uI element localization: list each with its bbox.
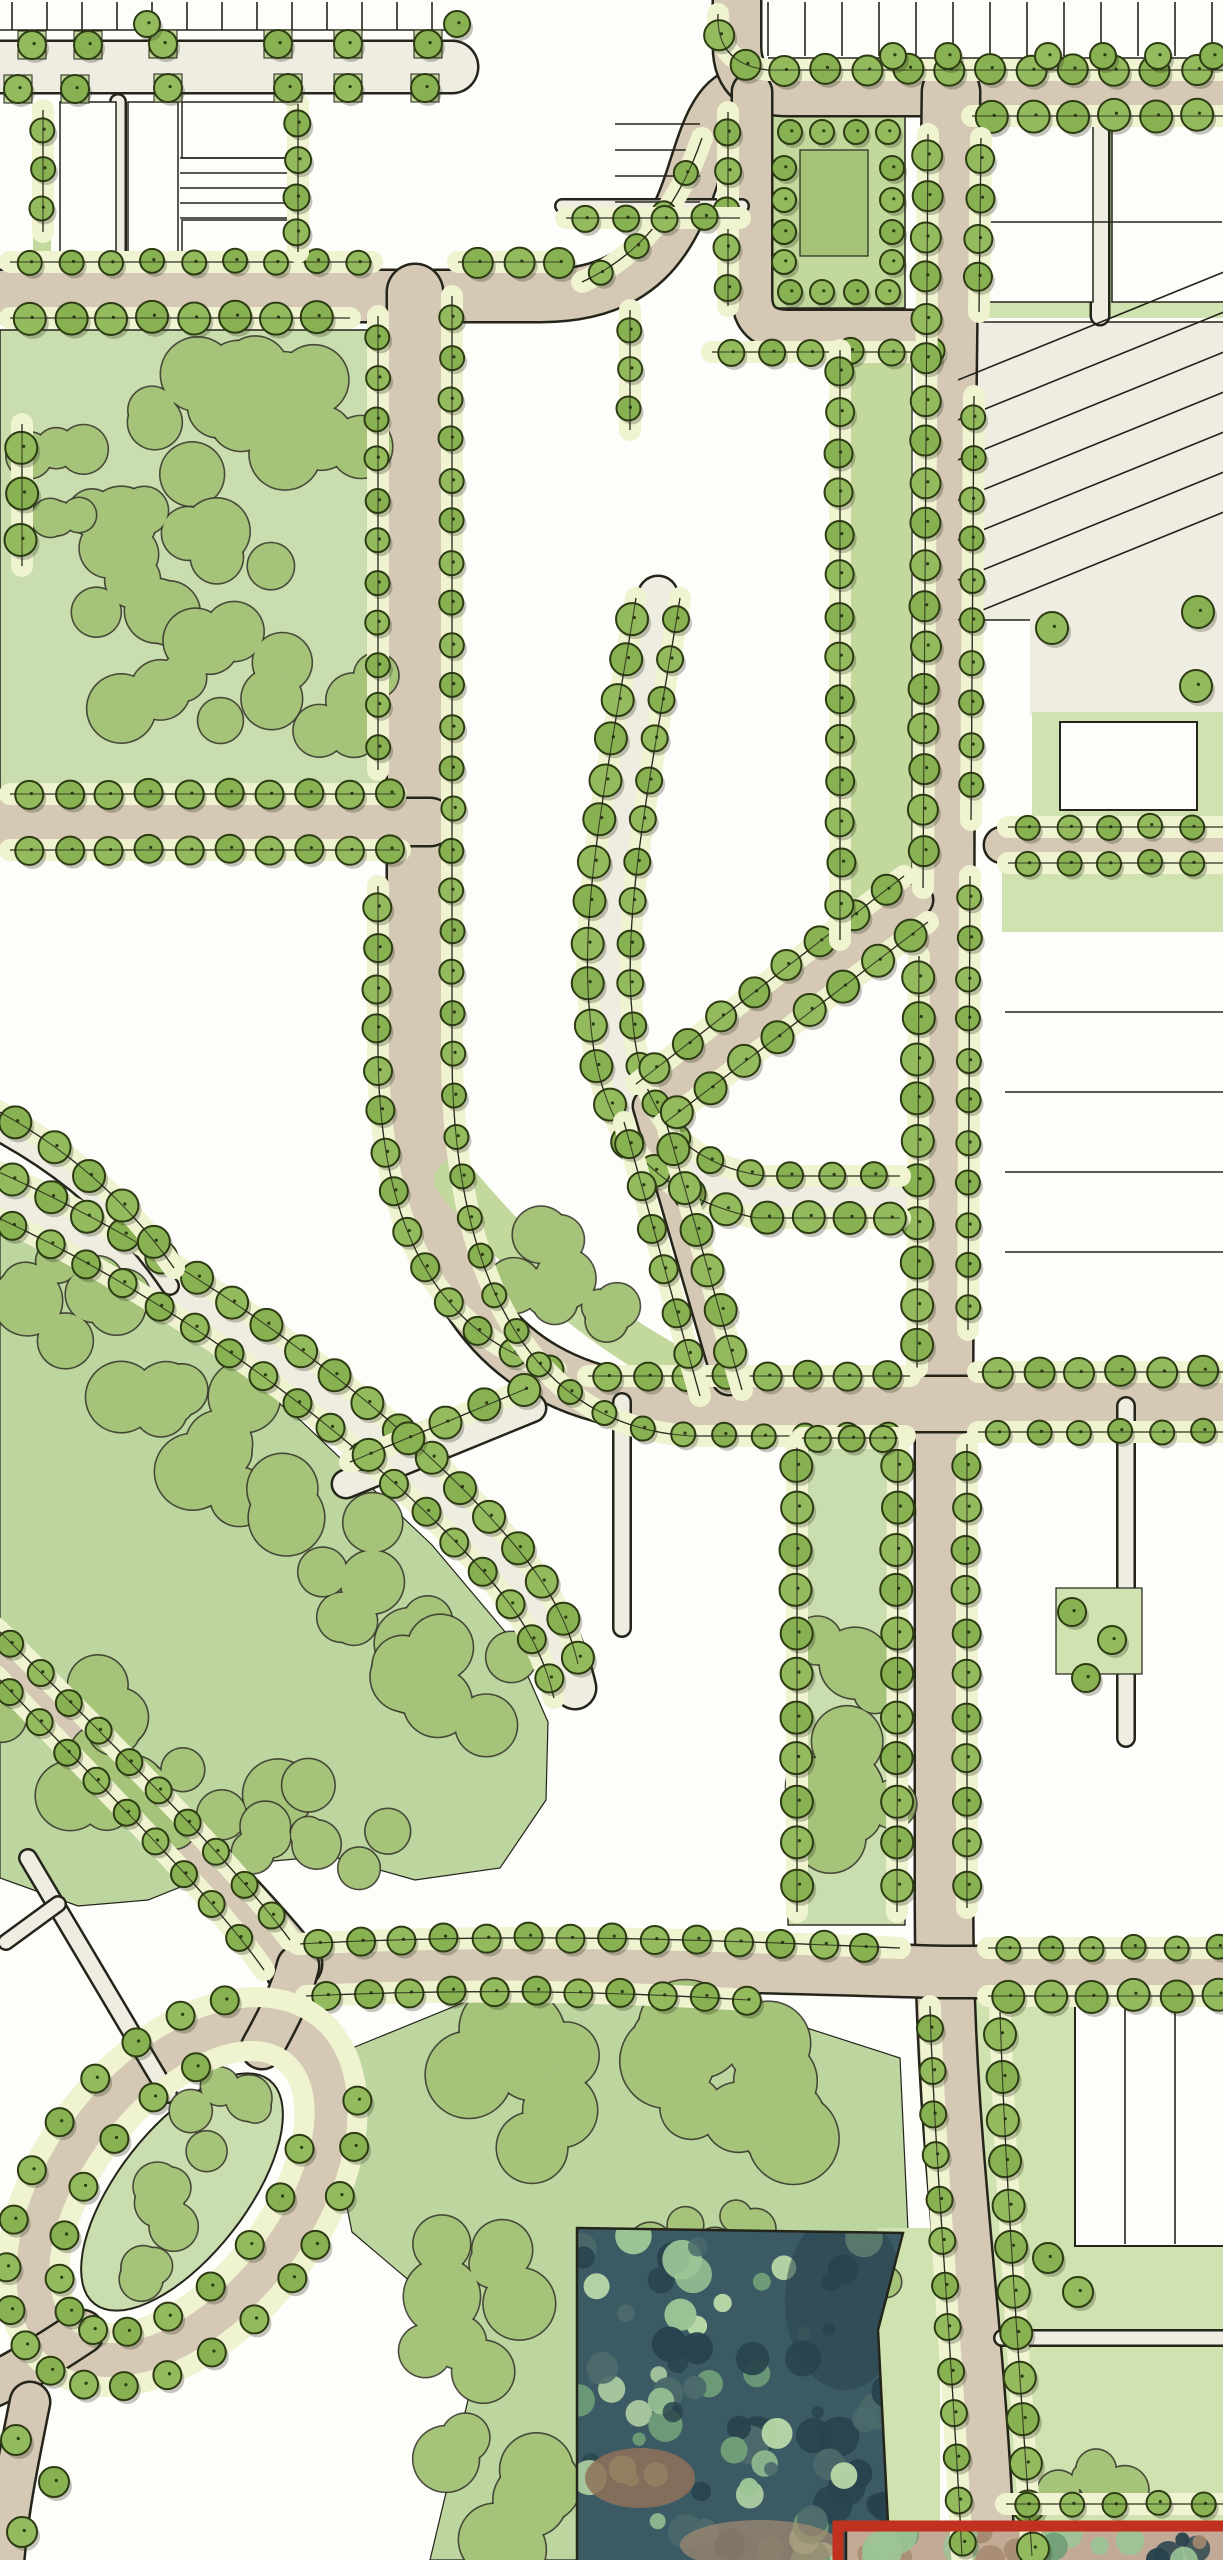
street-tree <box>989 2145 1021 2177</box>
street-tree <box>617 396 641 420</box>
street-tree <box>1 2425 31 2455</box>
street-tree <box>414 30 442 58</box>
street-tree <box>216 1287 248 1319</box>
tree-center-dot <box>918 1302 921 1305</box>
street-tree <box>876 280 900 304</box>
tree-canopy <box>632 2006 703 2077</box>
tree-canopy <box>187 2131 226 2170</box>
street-tree <box>1138 850 1162 874</box>
tree-center-dot <box>1197 683 1200 686</box>
photo-foliage <box>664 2299 696 2331</box>
street-tree <box>167 2002 195 2030</box>
tree-center-dot <box>1053 625 1056 628</box>
tree-center-dot <box>96 2076 99 2079</box>
tree-center-dot <box>954 2410 957 2413</box>
tree-center-dot <box>1120 1428 1123 1431</box>
photo-foliage <box>727 2416 751 2440</box>
street-tree <box>718 340 744 366</box>
street-tree <box>54 1740 80 1766</box>
street-tree <box>704 20 734 50</box>
tree-center-dot <box>378 375 381 378</box>
tree-canopy <box>331 1598 377 1644</box>
street-tree <box>336 781 364 809</box>
tree-center-dot <box>892 229 895 232</box>
street-tree <box>712 1423 736 1447</box>
tree-center-dot <box>124 2383 127 2386</box>
street-tree <box>353 1439 385 1471</box>
street-tree <box>880 1534 912 1566</box>
tree-center-dot <box>485 1401 488 1404</box>
photo-foliage <box>721 2437 748 2464</box>
tree-center-dot <box>490 1514 493 1517</box>
tree-center-dot <box>379 945 382 948</box>
tree-center-dot <box>888 289 891 292</box>
tree-center-dot <box>697 1937 700 1940</box>
street-tree <box>18 251 42 275</box>
photo-foliage <box>736 2342 769 2375</box>
street-tree <box>615 1130 643 1158</box>
tree-center-dot <box>967 1671 970 1674</box>
street-tree <box>1098 99 1130 131</box>
tree-center-dot <box>462 1174 465 1177</box>
street-tree <box>1188 1356 1218 1386</box>
tree-center-dot <box>1027 2460 1030 2463</box>
tree-center-dot <box>892 165 895 168</box>
photo-foliage <box>650 2513 666 2529</box>
street-tree <box>780 1742 812 1774</box>
street-tree <box>236 2231 264 2259</box>
tree-center-dot <box>920 1015 923 1018</box>
street-tree <box>135 835 163 863</box>
street-tree <box>911 632 941 662</box>
street-tree <box>216 835 244 863</box>
street-tree <box>135 779 163 807</box>
tree-center-dot <box>198 1275 201 1278</box>
street-tree <box>957 885 981 909</box>
aerial-photo-inset <box>563 2210 916 2560</box>
street-tree <box>197 2273 225 2301</box>
street-tree <box>780 1450 812 1482</box>
street-tree <box>393 1218 421 1246</box>
tree-center-dot <box>155 1239 158 1242</box>
building-lot <box>128 102 178 256</box>
tree-center-dot <box>570 1389 573 1392</box>
tree-center-dot <box>60 2276 63 2279</box>
street-tree <box>959 691 983 715</box>
street-tree <box>780 1534 812 1566</box>
tree-canopy <box>282 1759 334 1811</box>
tree-center-dot <box>909 66 912 69</box>
street-tree <box>692 204 718 230</box>
tree-canopy <box>131 661 190 720</box>
tree-center-dot <box>840 736 843 739</box>
tree-center-dot <box>470 1215 473 1218</box>
street-tree <box>219 301 251 333</box>
tree-center-dot <box>543 1578 546 1581</box>
tree-center-dot <box>168 2372 171 2375</box>
tree-center-dot <box>159 1787 162 1790</box>
tree-center-dot <box>1034 2545 1037 2548</box>
street-tree <box>15 781 43 809</box>
street-tree <box>844 120 868 144</box>
tree-center-dot <box>727 1206 730 1209</box>
tree-center-dot <box>970 935 973 938</box>
tree-center-dot <box>971 782 974 785</box>
street-tree <box>873 1361 901 1389</box>
street-tree <box>154 74 182 102</box>
street-tree <box>901 1082 933 1114</box>
tree-center-dot <box>1115 112 1118 115</box>
street-tree <box>733 1987 761 2015</box>
street-tree <box>376 779 404 807</box>
tree-canopy <box>721 2201 752 2232</box>
tree-canopy <box>184 499 250 565</box>
street-tree <box>1182 596 1214 628</box>
tree-center-dot <box>918 1177 921 1180</box>
tree-center-dot <box>957 2455 960 2458</box>
photo-foliage <box>667 2352 688 2373</box>
street-tree <box>923 2142 949 2168</box>
street-tree <box>56 1690 82 1716</box>
street-tree <box>772 250 796 274</box>
street-tree <box>0 1212 26 1240</box>
street-tree <box>463 248 493 278</box>
tree-canopy <box>470 2241 517 2288</box>
tree-center-dot <box>790 289 793 292</box>
street-tree <box>777 1162 803 1188</box>
street-tree <box>1108 1419 1132 1443</box>
street-tree <box>18 31 46 59</box>
street-tree <box>825 891 853 919</box>
tree-canopy <box>164 609 227 672</box>
street-tree <box>514 1923 542 1951</box>
tree-center-dot <box>331 1425 334 1428</box>
tree-canopy <box>373 1636 433 1696</box>
photo-ground-patch <box>585 2448 695 2508</box>
tree-center-dot <box>968 1883 971 1886</box>
street-tree <box>956 1171 980 1195</box>
tree-center-dot <box>784 197 787 200</box>
tree-center-dot <box>355 2144 358 2147</box>
street-tree <box>544 248 574 278</box>
street-tree <box>395 1979 423 2007</box>
photo-foliage <box>812 2406 824 2418</box>
tree-center-dot <box>452 682 455 685</box>
street-tree <box>392 1422 424 1454</box>
tree-center-dot <box>76 86 79 89</box>
street-tree <box>411 74 439 102</box>
tree-center-dot <box>925 603 928 606</box>
photo-foliage <box>1090 2537 1108 2555</box>
street-tree <box>70 2371 98 2399</box>
tree-center-dot <box>85 2382 88 2385</box>
tree-canopy <box>299 1548 347 1596</box>
tree-center-dot <box>1219 1991 1222 1994</box>
tree-canopy <box>135 1384 187 1436</box>
tree-center-dot <box>564 1616 567 1619</box>
street-tree <box>56 837 84 865</box>
street-tree <box>216 779 244 807</box>
tree-center-dot <box>724 1432 727 1435</box>
tree-center-dot <box>898 1883 901 1886</box>
street-tree <box>81 2065 109 2093</box>
tree-center-dot <box>1158 53 1161 56</box>
street-tree <box>780 1574 812 1606</box>
tree-center-dot <box>1003 2074 1006 2077</box>
tree-center-dot <box>390 790 393 793</box>
street-tree <box>365 446 389 470</box>
street-tree <box>226 1925 252 1951</box>
street-tree <box>482 1283 506 1307</box>
street-tree <box>1058 1598 1086 1626</box>
street-tree <box>340 2133 368 2161</box>
street-tree <box>583 803 615 835</box>
tree-center-dot <box>898 1670 901 1673</box>
street-tree <box>413 1498 441 1526</box>
street-tree <box>714 119 740 145</box>
tree-center-dot <box>427 1509 430 1512</box>
street-tree <box>363 975 391 1003</box>
tree-center-dot <box>153 314 156 317</box>
street-tree <box>56 781 84 809</box>
street-tree <box>759 340 785 366</box>
tree-center-dot <box>452 642 455 645</box>
street-tree <box>37 2357 65 2385</box>
tree-center-dot <box>1203 1428 1206 1431</box>
tree-center-dot <box>1015 2289 1018 2292</box>
street-tree <box>592 1401 616 1425</box>
tree-center-dot <box>968 1262 971 1265</box>
tree-center-dot <box>33 42 36 45</box>
tree-center-dot <box>967 1631 970 1634</box>
tree-center-dot <box>797 1630 800 1633</box>
tree-center-dot <box>123 1280 126 1283</box>
tree-canopy <box>38 1314 92 1368</box>
tree-center-dot <box>928 193 931 196</box>
street-tree <box>935 43 961 69</box>
street-tree <box>46 2108 74 2136</box>
tree-canopy <box>404 2259 480 2335</box>
street-tree <box>198 2338 226 2366</box>
tree-center-dot <box>1073 1609 1076 1612</box>
tree-canopy <box>240 2092 271 2123</box>
tree-center-dot <box>926 562 929 565</box>
tree-center-dot <box>926 480 929 483</box>
tree-center-dot <box>236 313 239 316</box>
tree-center-dot <box>532 1636 535 1639</box>
tree-center-dot <box>216 1849 219 1852</box>
street-tree <box>1097 852 1121 876</box>
street-tree <box>71 1201 103 1233</box>
street-tree <box>1097 816 1121 840</box>
street-tree <box>1033 2243 1063 2273</box>
street-tree <box>256 781 284 809</box>
street-tree <box>874 1203 906 1235</box>
tree-center-dot <box>433 1455 436 1458</box>
street-tree <box>630 806 656 832</box>
tree-canopy <box>249 1480 324 1555</box>
tree-center-dot <box>453 1010 456 1013</box>
street-tree <box>794 1361 822 1389</box>
tree-center-dot <box>429 41 432 44</box>
street-tree <box>363 893 391 921</box>
tree-center-dot <box>898 1799 901 1802</box>
street-tree <box>439 305 463 329</box>
street-tree <box>960 526 984 550</box>
tree-center-dot <box>211 2284 214 2287</box>
street-tree <box>284 110 310 136</box>
tree-center-dot <box>426 1264 429 1267</box>
tree-canopy <box>811 1752 881 1822</box>
tree-center-dot <box>822 129 825 132</box>
tree-center-dot <box>841 409 844 412</box>
tree-center-dot <box>358 2098 361 2101</box>
street-tree <box>691 1254 723 1286</box>
tree-center-dot <box>318 314 321 317</box>
street-tree <box>122 2028 150 2056</box>
tree-center-dot <box>919 974 922 977</box>
tree-center-dot <box>925 766 928 769</box>
street-tree <box>825 357 853 385</box>
tree-center-dot <box>851 348 854 351</box>
street-tree <box>714 1336 746 1368</box>
street-tree <box>1016 852 1040 876</box>
tree-center-dot <box>634 1023 637 1026</box>
street-tree <box>827 849 855 877</box>
tree-canopy <box>254 352 315 413</box>
street-tree <box>1191 1419 1215 1443</box>
street-tree <box>952 1744 980 1772</box>
tree-center-dot <box>255 2316 258 2319</box>
building-lot <box>60 102 116 256</box>
tree-center-dot <box>1073 66 1076 69</box>
street-tree <box>284 184 310 210</box>
tree-center-dot <box>605 1410 608 1413</box>
street-tree <box>146 1293 174 1321</box>
tree-center-dot <box>281 2194 284 2197</box>
tree-canopy <box>456 1695 517 1756</box>
street-tree <box>876 120 900 144</box>
tree-center-dot <box>728 168 731 171</box>
street-tree <box>95 781 123 809</box>
tree-center-dot <box>927 643 930 646</box>
photo-foliage <box>1193 2535 1207 2549</box>
tree-center-dot <box>874 1172 877 1175</box>
street-tree <box>0 1106 31 1138</box>
photo-foliage <box>691 2482 711 2502</box>
street-tree <box>535 1664 563 1692</box>
tree-center-dot <box>991 66 994 69</box>
street-tree <box>1180 670 1212 702</box>
street-tree <box>437 1977 465 2005</box>
street-tree <box>769 56 799 86</box>
street-tree <box>920 2101 946 2127</box>
tree-center-dot <box>1198 111 1201 114</box>
tree-center-dot <box>697 1227 700 1230</box>
street-tree <box>986 1421 1010 1445</box>
street-tree <box>911 222 941 252</box>
tree-center-dot <box>378 662 381 665</box>
tree-canopy <box>594 1283 639 1328</box>
street-tree <box>558 1380 582 1404</box>
tree-center-dot <box>798 1799 801 1802</box>
tree-center-dot <box>426 85 429 88</box>
tree-center-dot <box>152 258 155 261</box>
street-tree <box>839 1426 865 1452</box>
street-tree <box>505 1319 529 1343</box>
street-tree <box>429 1924 457 1952</box>
tree-canopy <box>442 2414 489 2461</box>
street-tree <box>1063 2277 1093 2307</box>
tree-center-dot <box>621 1990 624 1993</box>
tree-center-dot <box>892 197 895 200</box>
tree-canopy <box>36 428 76 468</box>
tree-center-dot <box>1009 2203 1012 2206</box>
street-tree <box>1025 1358 1055 1388</box>
street-tree <box>912 140 942 170</box>
tree-center-dot <box>631 941 634 944</box>
tree-canopy <box>727 2002 810 2085</box>
street-tree <box>441 919 465 943</box>
tree-center-dot <box>1048 53 1051 56</box>
tree-center-dot <box>842 860 845 863</box>
street-tree <box>46 2265 74 2293</box>
tree-center-dot <box>65 2232 68 2235</box>
street-tree <box>613 206 639 232</box>
street-tree <box>1058 852 1082 876</box>
tree-center-dot <box>933 2068 936 2071</box>
street-tree <box>961 405 985 429</box>
tree-center-dot <box>519 1545 522 1548</box>
tree-center-dot <box>99 1728 102 1731</box>
tree-center-dot <box>11 2307 14 2310</box>
street-tree <box>547 1603 579 1635</box>
tree-center-dot <box>335 1372 338 1375</box>
tree-center-dot <box>683 1432 686 1435</box>
tree-center-dot <box>60 2119 63 2122</box>
master-plan-map <box>0 0 1223 2560</box>
tree-center-dot <box>588 941 591 944</box>
street-tree <box>284 1389 312 1417</box>
tree-center-dot <box>840 819 843 822</box>
street-tree <box>580 1050 612 1082</box>
tree-center-dot <box>898 1839 901 1842</box>
street-tree <box>793 1201 825 1233</box>
street-tree <box>380 1177 408 1205</box>
tree-center-dot <box>511 1601 514 1604</box>
tree-center-dot <box>611 1101 614 1104</box>
street-tree <box>14 303 46 335</box>
tree-canopy <box>161 443 224 506</box>
tree-center-dot <box>349 85 352 88</box>
tree-center-dot <box>454 1093 457 1096</box>
tree-canopy <box>523 2074 597 2148</box>
tree-center-dot <box>768 1214 771 1217</box>
street-tree <box>966 145 994 173</box>
street-tree <box>523 1977 551 2005</box>
street-tree <box>264 251 288 275</box>
tree-center-dot <box>1219 1944 1222 1947</box>
street-tree <box>153 2361 181 2389</box>
street-tree <box>4 75 32 103</box>
street-tree <box>562 1642 594 1674</box>
tree-center-dot <box>481 1253 484 1256</box>
tree-center-dot <box>597 1063 600 1066</box>
street-tree <box>387 1927 415 1955</box>
tree-center-dot <box>94 2327 97 2330</box>
street-tree <box>556 1925 584 1953</box>
street-tree <box>264 30 292 58</box>
